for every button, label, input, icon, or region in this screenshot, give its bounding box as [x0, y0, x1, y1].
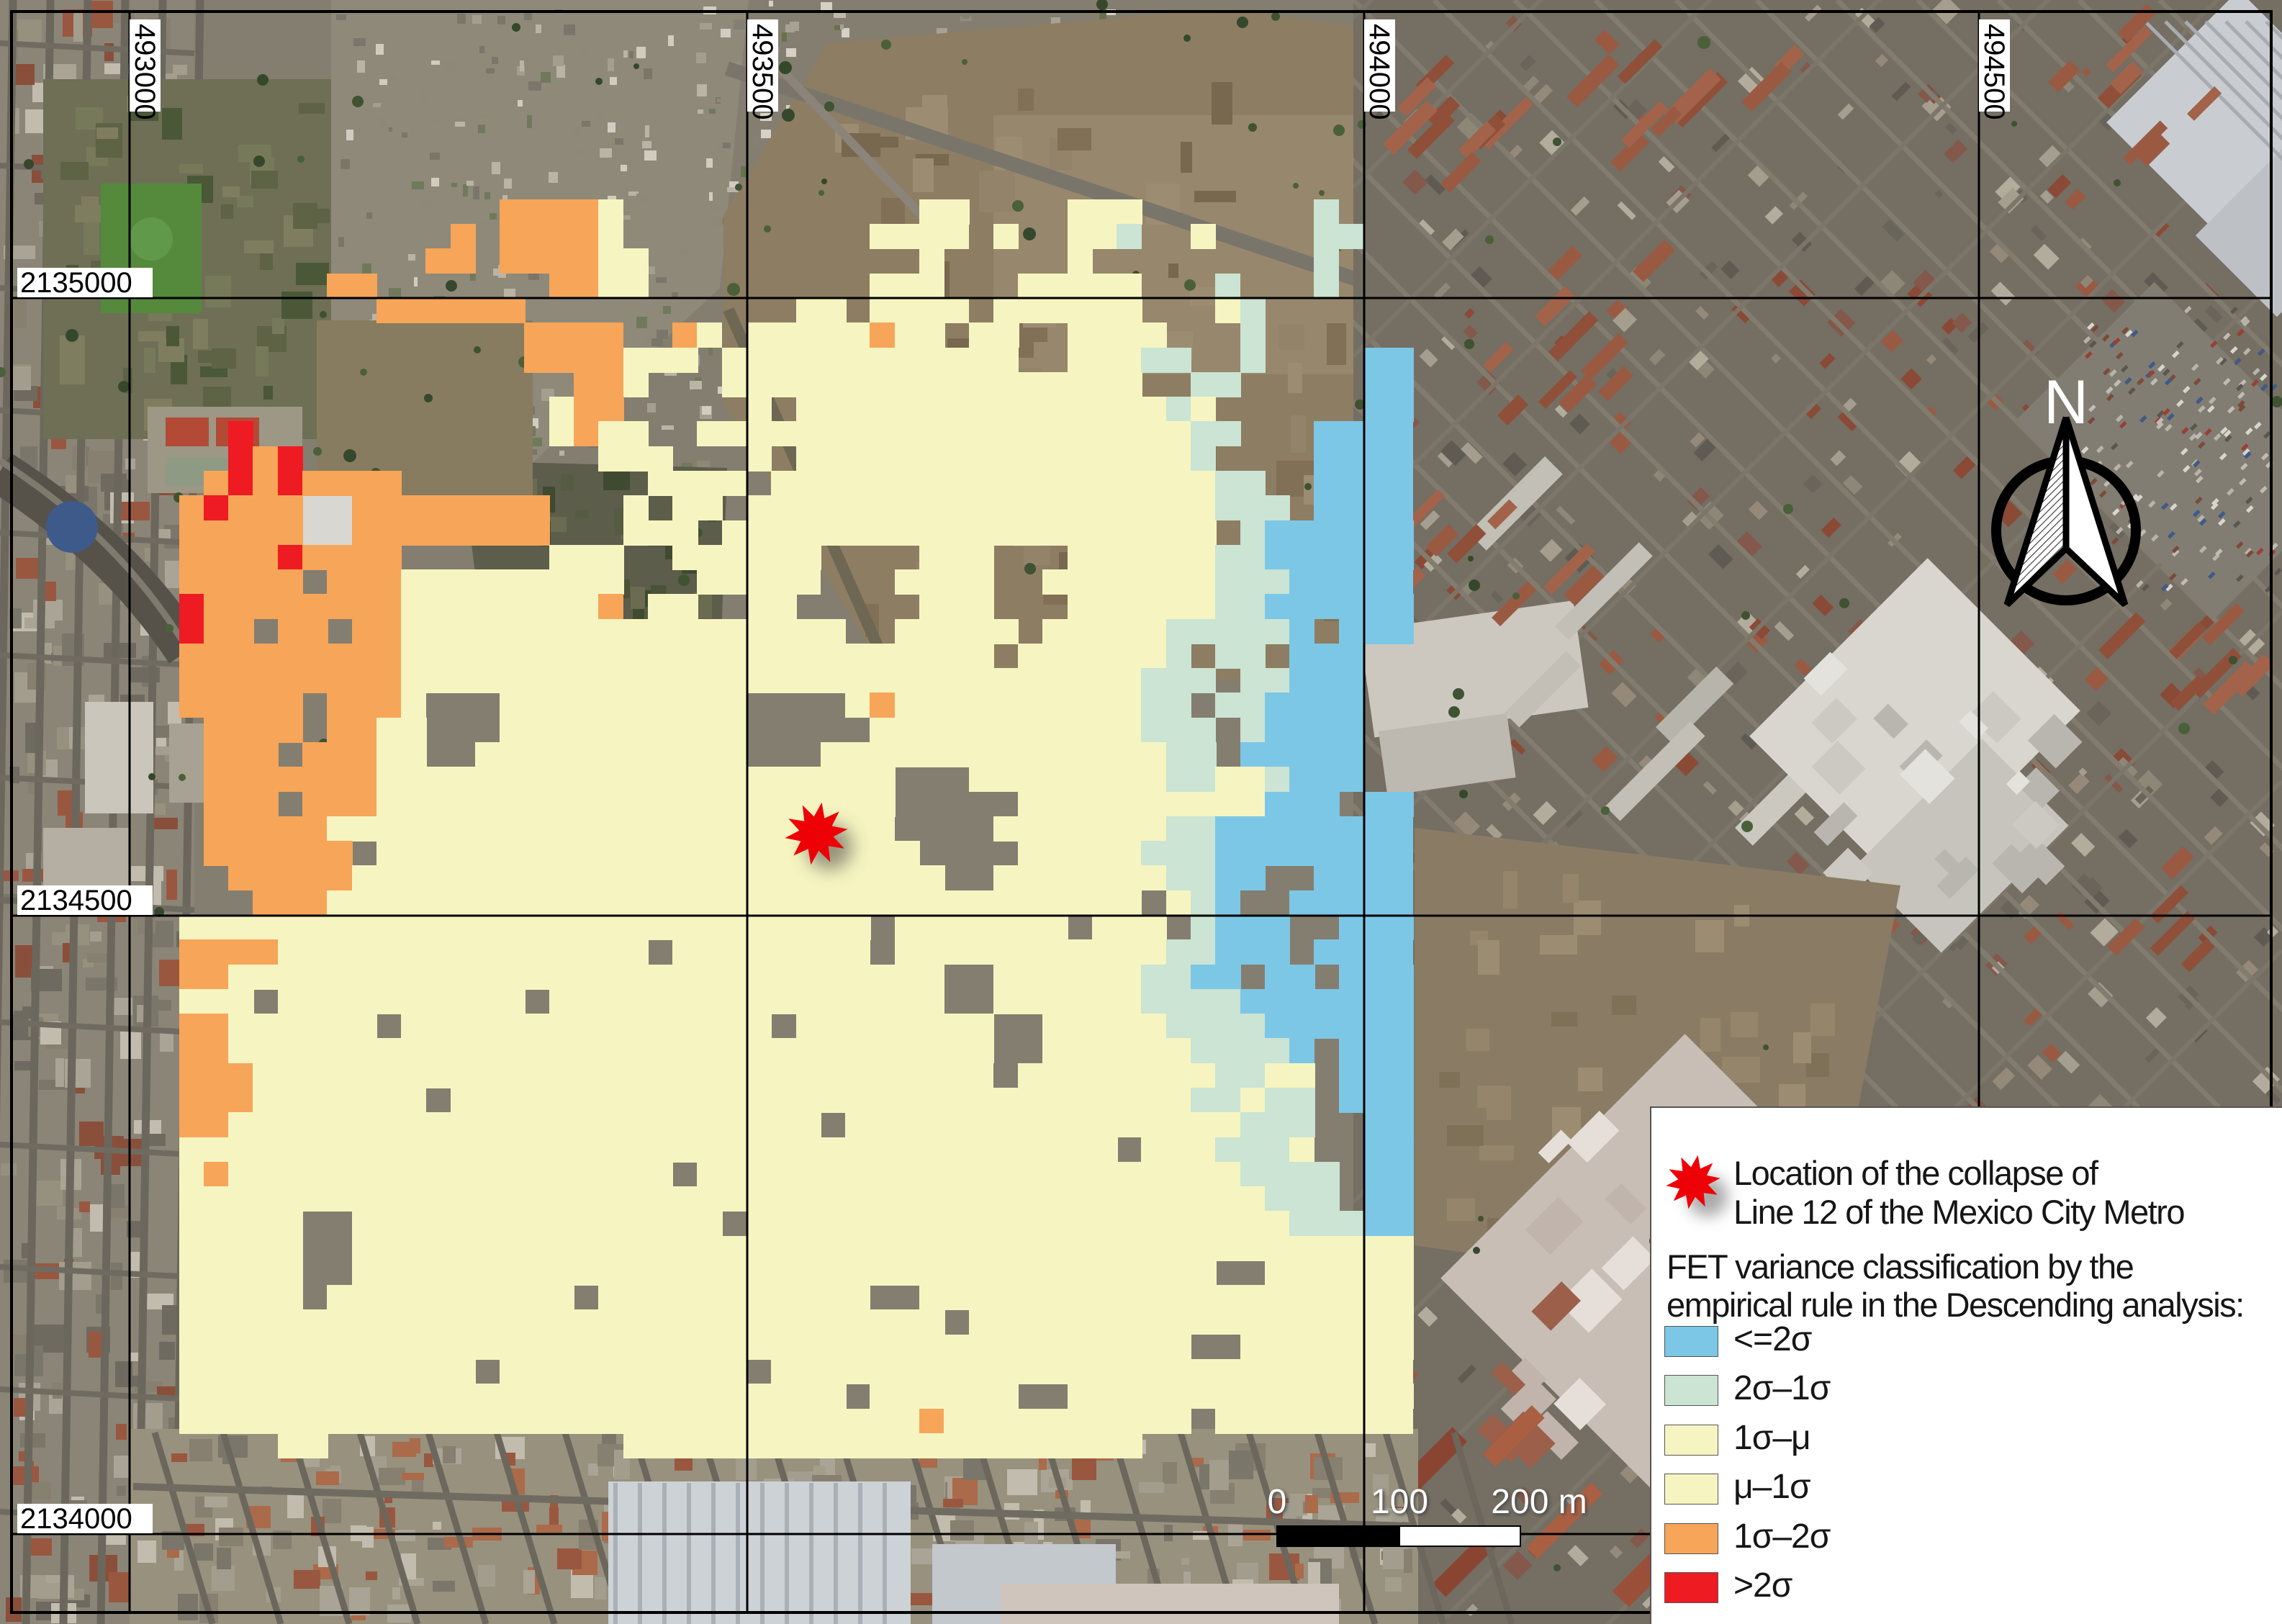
svg-text:493000: 493000: [129, 24, 161, 119]
svg-text:200 m: 200 m: [1491, 1483, 1587, 1521]
svg-text:2135000: 2135000: [20, 267, 132, 299]
svg-text:493500: 493500: [747, 24, 778, 119]
svg-text:2134500: 2134500: [20, 885, 132, 916]
svg-text:494000: 494000: [1363, 24, 1395, 119]
svg-text:494500: 494500: [1978, 24, 2010, 119]
svg-text:0: 0: [1268, 1483, 1287, 1521]
svg-text:2134000: 2134000: [20, 1503, 132, 1535]
svg-text:N: N: [2044, 368, 2088, 437]
svg-text:100: 100: [1371, 1483, 1428, 1521]
